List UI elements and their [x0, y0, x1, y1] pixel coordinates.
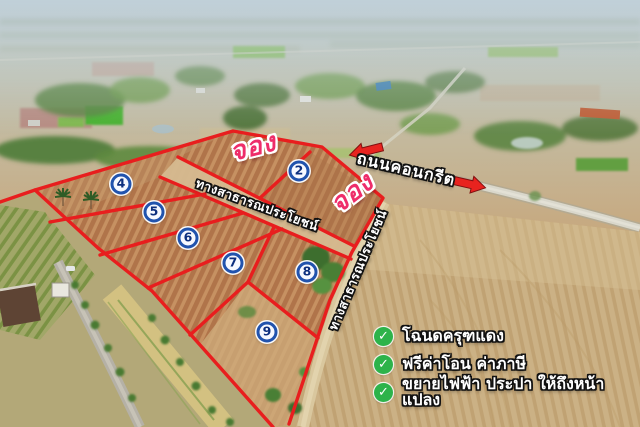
feature-text: โฉนดครุฑแดง: [402, 328, 504, 344]
feature-text: ฟรีค่าโอน ค่าภาษี: [402, 356, 526, 372]
feature-item: ✓ โฉนดครุฑแดง: [374, 326, 640, 346]
aerial-land-plot-ad: จอง จอง ถนนคอนกรีต ทางสาธารณประโยชน์ ทาง…: [0, 0, 640, 427]
feature-item: ✓ ฟรีค่าโอน ค่าภาษี: [374, 354, 640, 374]
check-circle-icon: ✓: [374, 383, 393, 402]
check-circle-icon: ✓: [374, 327, 393, 346]
feature-item: ✓ ขยายไฟฟ้า ประปา ให้ถึงหน้าแปลง: [374, 382, 640, 402]
plot-badge-6: 6: [178, 228, 199, 249]
plot-badge-5: 5: [144, 202, 165, 223]
plot-badge-9: 9: [257, 322, 278, 343]
plot-badge-8: 8: [297, 262, 318, 283]
feature-text: ขยายไฟฟ้า ประปา ให้ถึงหน้าแปลง: [402, 376, 640, 408]
plot-badge-7: 7: [223, 253, 244, 274]
plot-badge-4: 4: [111, 174, 132, 195]
feature-list: ✓ โฉนดครุฑแดง ✓ ฟรีค่าโอน ค่าภาษี ✓ ขยาย…: [374, 326, 640, 410]
check-circle-icon: ✓: [374, 355, 393, 374]
plot-badge-2: 2: [289, 161, 310, 182]
